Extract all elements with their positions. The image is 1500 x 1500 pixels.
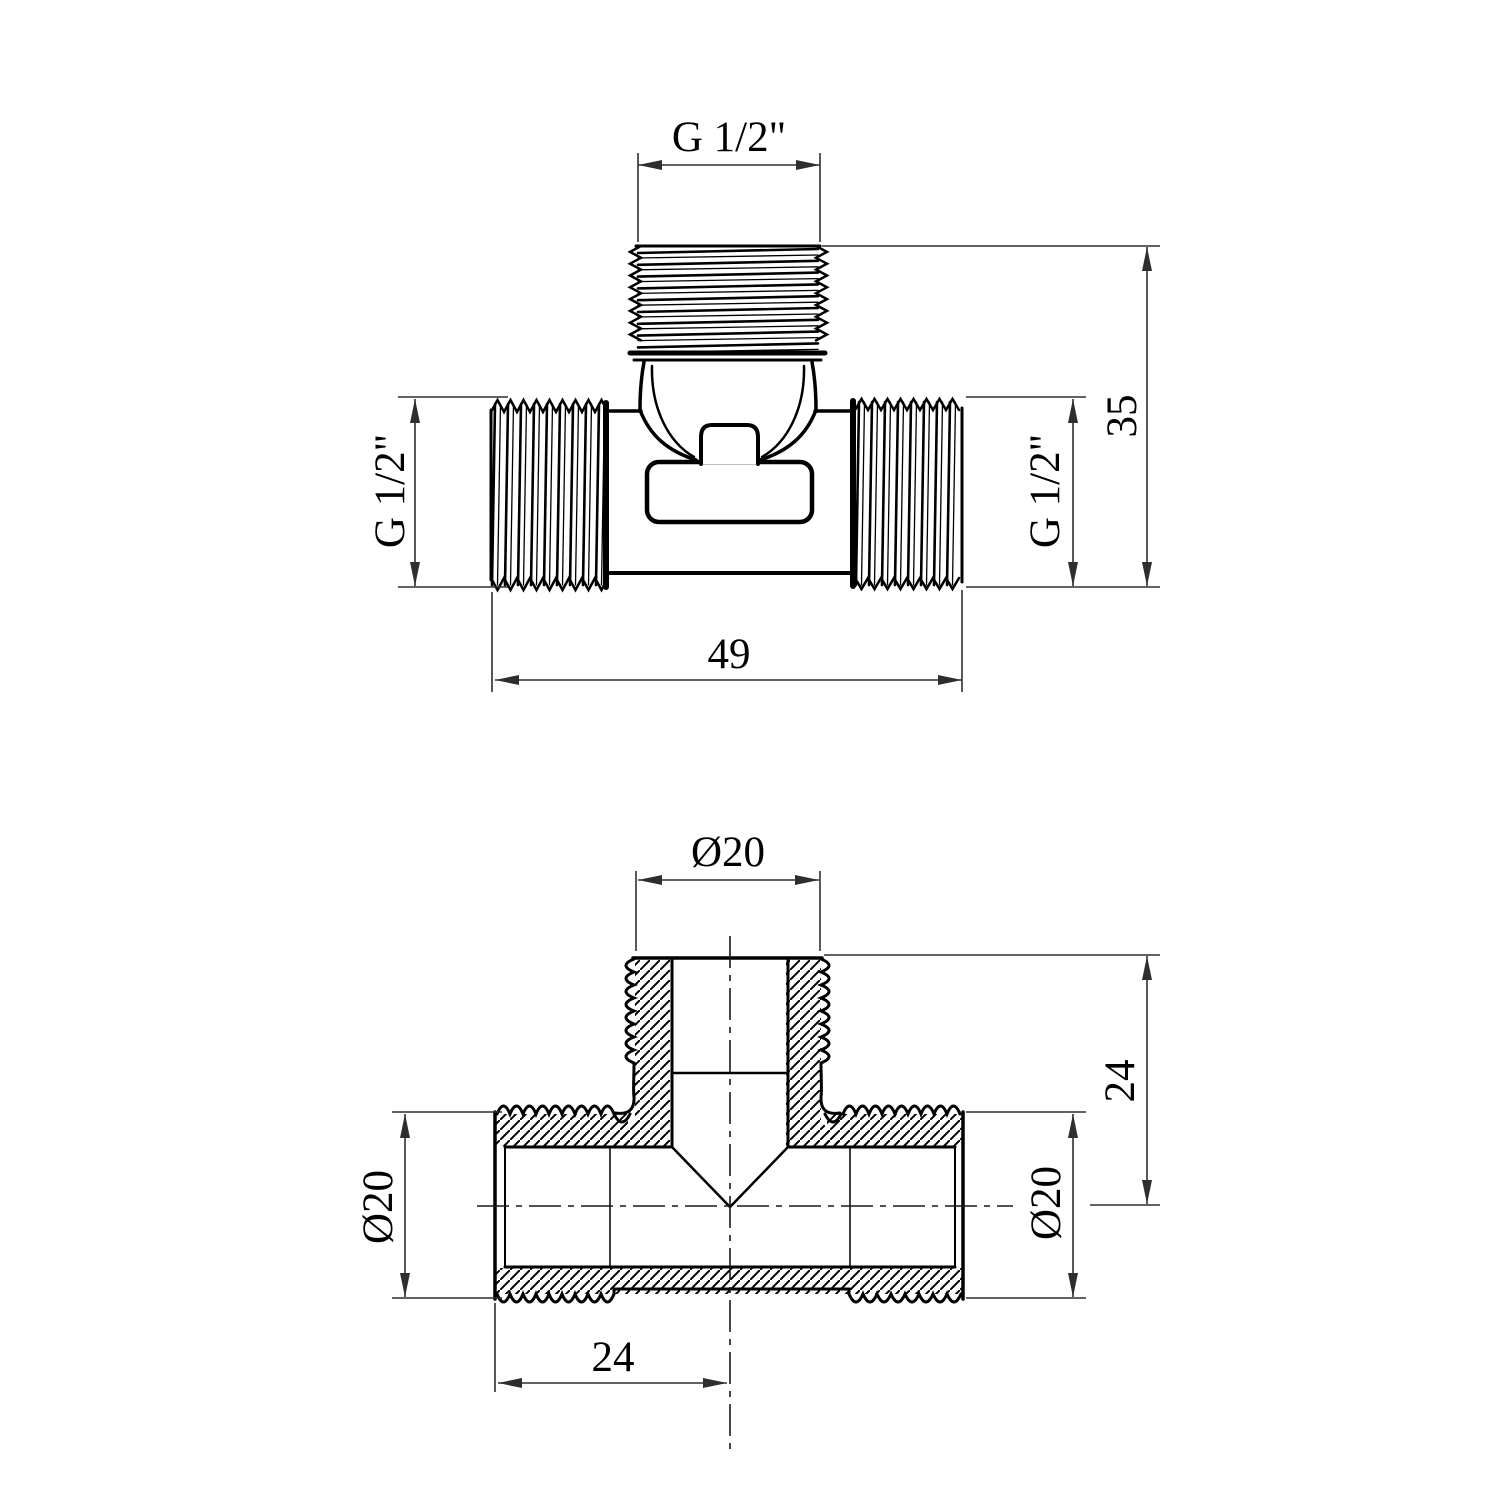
label-left-to-center-24: 24: [592, 1334, 635, 1381]
label-top-thread: G 1/2": [672, 114, 786, 161]
label-width-49: 49: [708, 631, 751, 678]
label-branch-od: Ø20: [691, 829, 765, 876]
label-right-od: Ø20: [1023, 1166, 1070, 1240]
technical-drawing: G 1/2" G 1/2" G 1/2" 35 49: [0, 0, 1500, 1500]
center-boss-tab: [701, 425, 758, 464]
label-left-thread: G 1/2": [367, 434, 414, 548]
label-height-35: 35: [1099, 395, 1146, 438]
hatch-branch-right-wall: [786, 960, 821, 1146]
hatch-run-top-right: [827, 1114, 962, 1146]
label-left-od: Ø20: [355, 1170, 402, 1244]
hatch-run-top-left: [496, 1114, 628, 1146]
hatch-branch-left-wall: [635, 960, 670, 1146]
drawing-canvas: G 1/2" G 1/2" G 1/2" 35 49: [0, 0, 1500, 1500]
center-boss: [647, 462, 812, 522]
label-right-thread: G 1/2": [1022, 434, 1069, 548]
label-branch-height-24: 24: [1097, 1060, 1144, 1103]
